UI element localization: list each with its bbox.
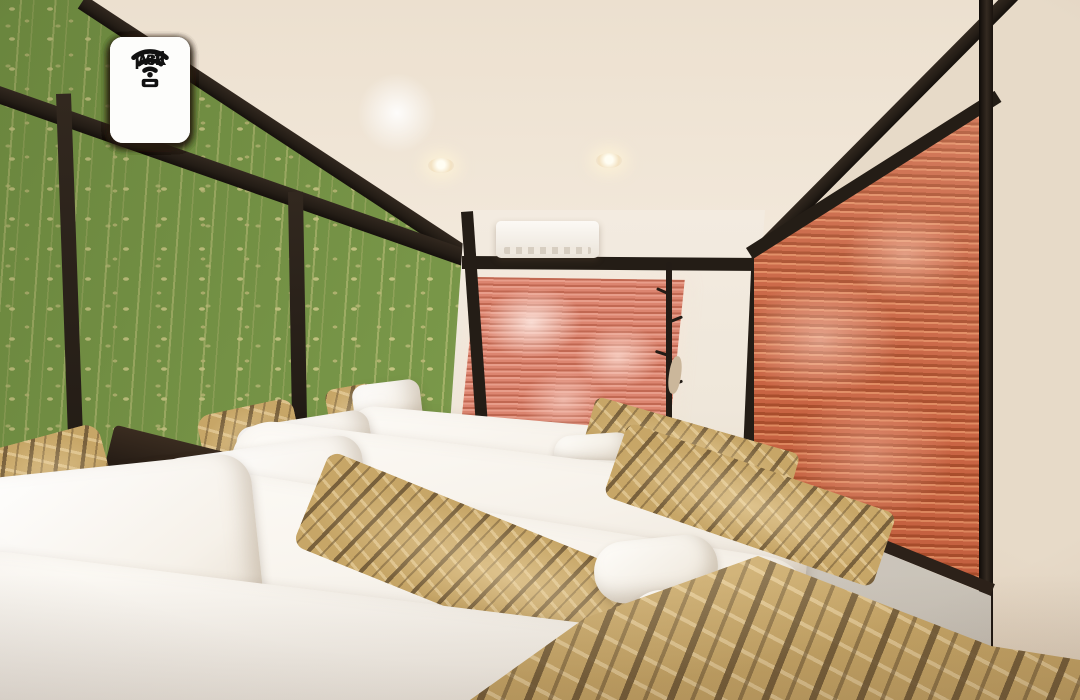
window-frame-post (979, 0, 993, 650)
air-conditioner (496, 221, 599, 258)
ceiling-light (596, 153, 622, 168)
ceiling-light (428, 158, 454, 173)
wood-beam (462, 256, 764, 271)
badge-label: wifi (135, 51, 165, 70)
hotel-room-photo: JR JR line 10* min (0, 0, 1080, 700)
ac-vent (504, 247, 591, 254)
badge-pocket-wifi: pck wifi (110, 37, 190, 143)
